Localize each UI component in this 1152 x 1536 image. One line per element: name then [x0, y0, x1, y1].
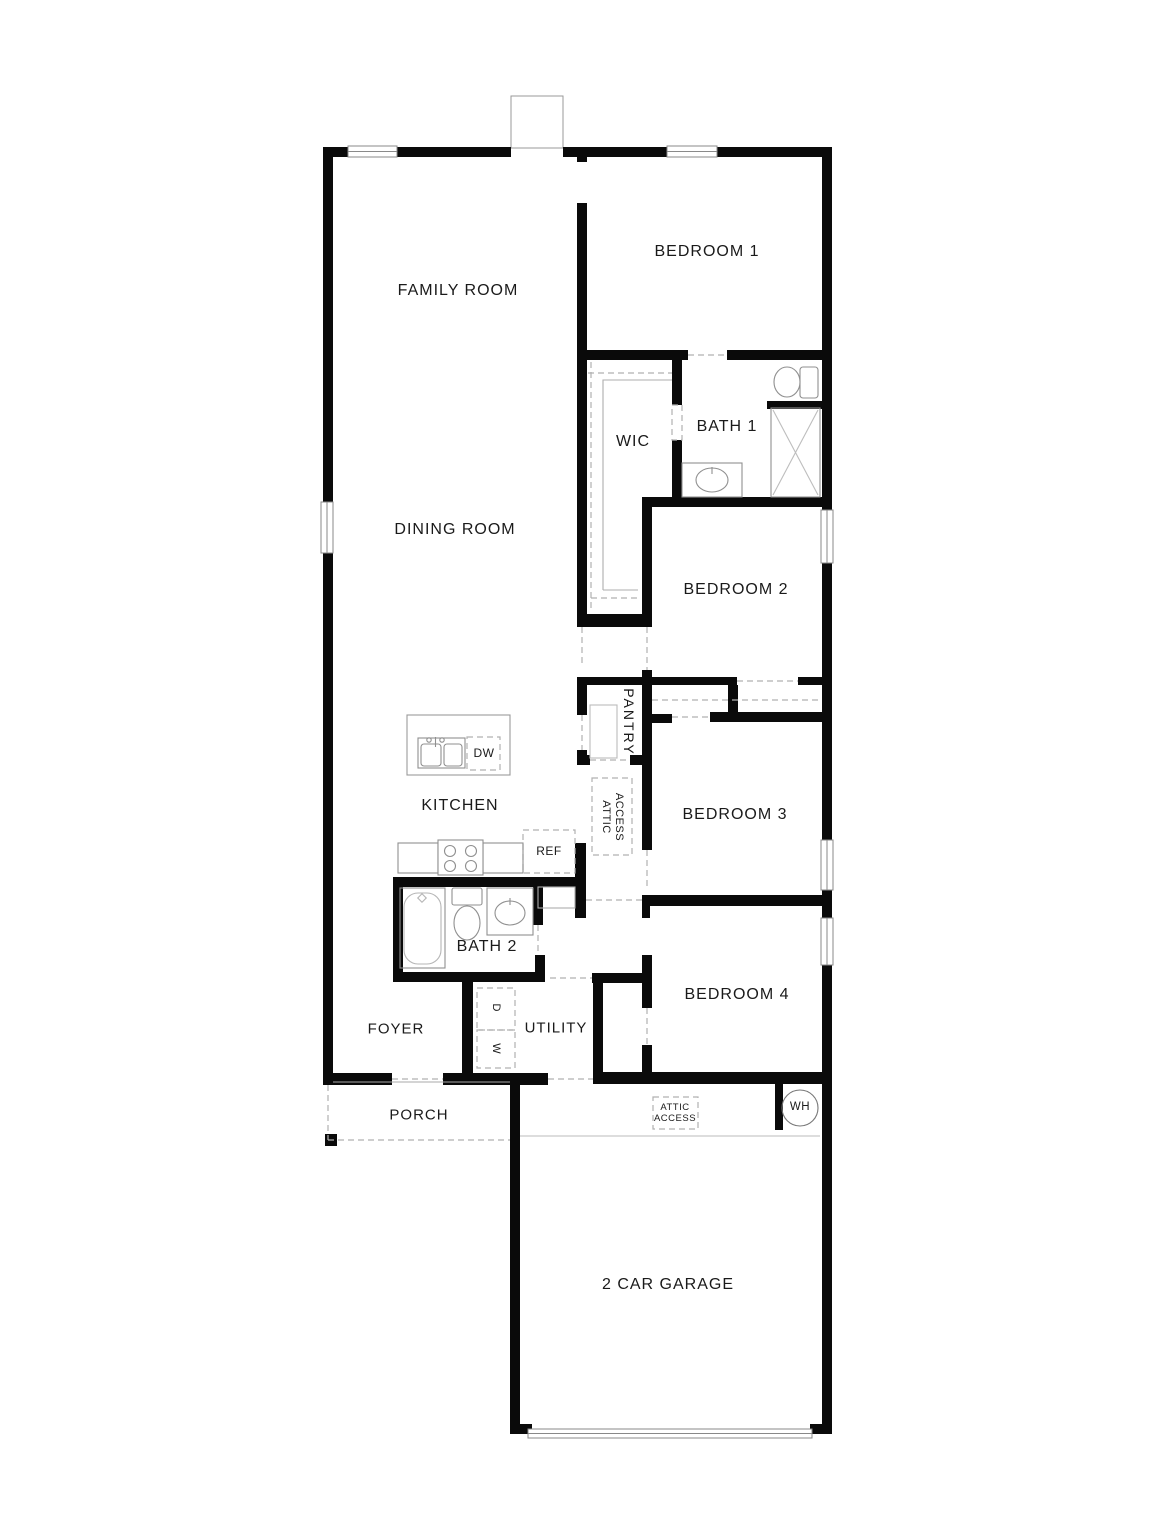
attic-access-line1: ATTIC [599, 793, 612, 841]
window-icon [821, 510, 833, 563]
fireplace-bump [511, 96, 563, 148]
bathtub-icon [400, 888, 445, 968]
attic-access-line1: ATTIC [660, 1102, 689, 1113]
room-label-bedroom-1: BEDROOM 1 [654, 243, 759, 261]
room-label-kitchen: KITCHEN [421, 797, 498, 815]
floor-plan: FAMILY ROOM BEDROOM 1 WIC BATH 1 DINING … [0, 0, 1152, 1536]
range-icon [398, 840, 523, 875]
pantry-shelf-icon [590, 705, 617, 758]
refrigerator-label: REF [536, 844, 562, 858]
sink-icon [487, 888, 533, 935]
room-label-wic: WIC [616, 433, 650, 451]
floor-plan-drawing [0, 0, 1152, 1536]
room-label-porch: PORCH [389, 1107, 448, 1124]
attic-access-line2: ACCESS [612, 793, 625, 841]
garage-door [528, 1429, 812, 1438]
kitchen-island-icon [407, 715, 510, 775]
room-label-garage: 2 CAR GARAGE [602, 1276, 734, 1294]
room-label-foyer: FOYER [368, 1021, 425, 1038]
room-label-family-room: FAMILY ROOM [398, 282, 519, 300]
room-label-dining-room: DINING ROOM [394, 521, 515, 539]
room-label-utility: UTILITY [525, 1020, 588, 1037]
washer-label: W [490, 1043, 502, 1054]
shower-icon [771, 408, 820, 497]
window-icon [348, 146, 397, 157]
hall-cabinet-icon [538, 887, 575, 908]
window-icon [821, 840, 833, 890]
room-label-pantry: PANTRY [621, 688, 637, 756]
room-label-bath-1: BATH 1 [697, 418, 758, 436]
window-icon [667, 146, 717, 157]
room-label-bath-2: BATH 2 [457, 938, 518, 956]
dishwasher-label: DW [474, 746, 495, 760]
window-icon [821, 918, 833, 965]
attic-access-garage-label: ATTIC ACCESS [654, 1102, 696, 1124]
toilet-icon [774, 367, 818, 398]
attic-access-hall-label: ATTIC ACCESS [599, 793, 625, 841]
fixtures [398, 367, 820, 1126]
sink-icon [682, 463, 742, 497]
dryer-label: D [490, 1004, 502, 1013]
walls [323, 147, 832, 1434]
room-label-bedroom-4: BEDROOM 4 [684, 986, 789, 1004]
attic-access-line2: ACCESS [654, 1113, 696, 1124]
room-label-bedroom-3: BEDROOM 3 [682, 806, 787, 824]
water-heater-label: WH [790, 1101, 810, 1113]
room-label-bedroom-2: BEDROOM 2 [683, 581, 788, 599]
wic-door [672, 405, 682, 440]
window-icon [321, 502, 333, 553]
toilet-icon [452, 888, 482, 940]
closet-shelf-icon [603, 380, 672, 590]
